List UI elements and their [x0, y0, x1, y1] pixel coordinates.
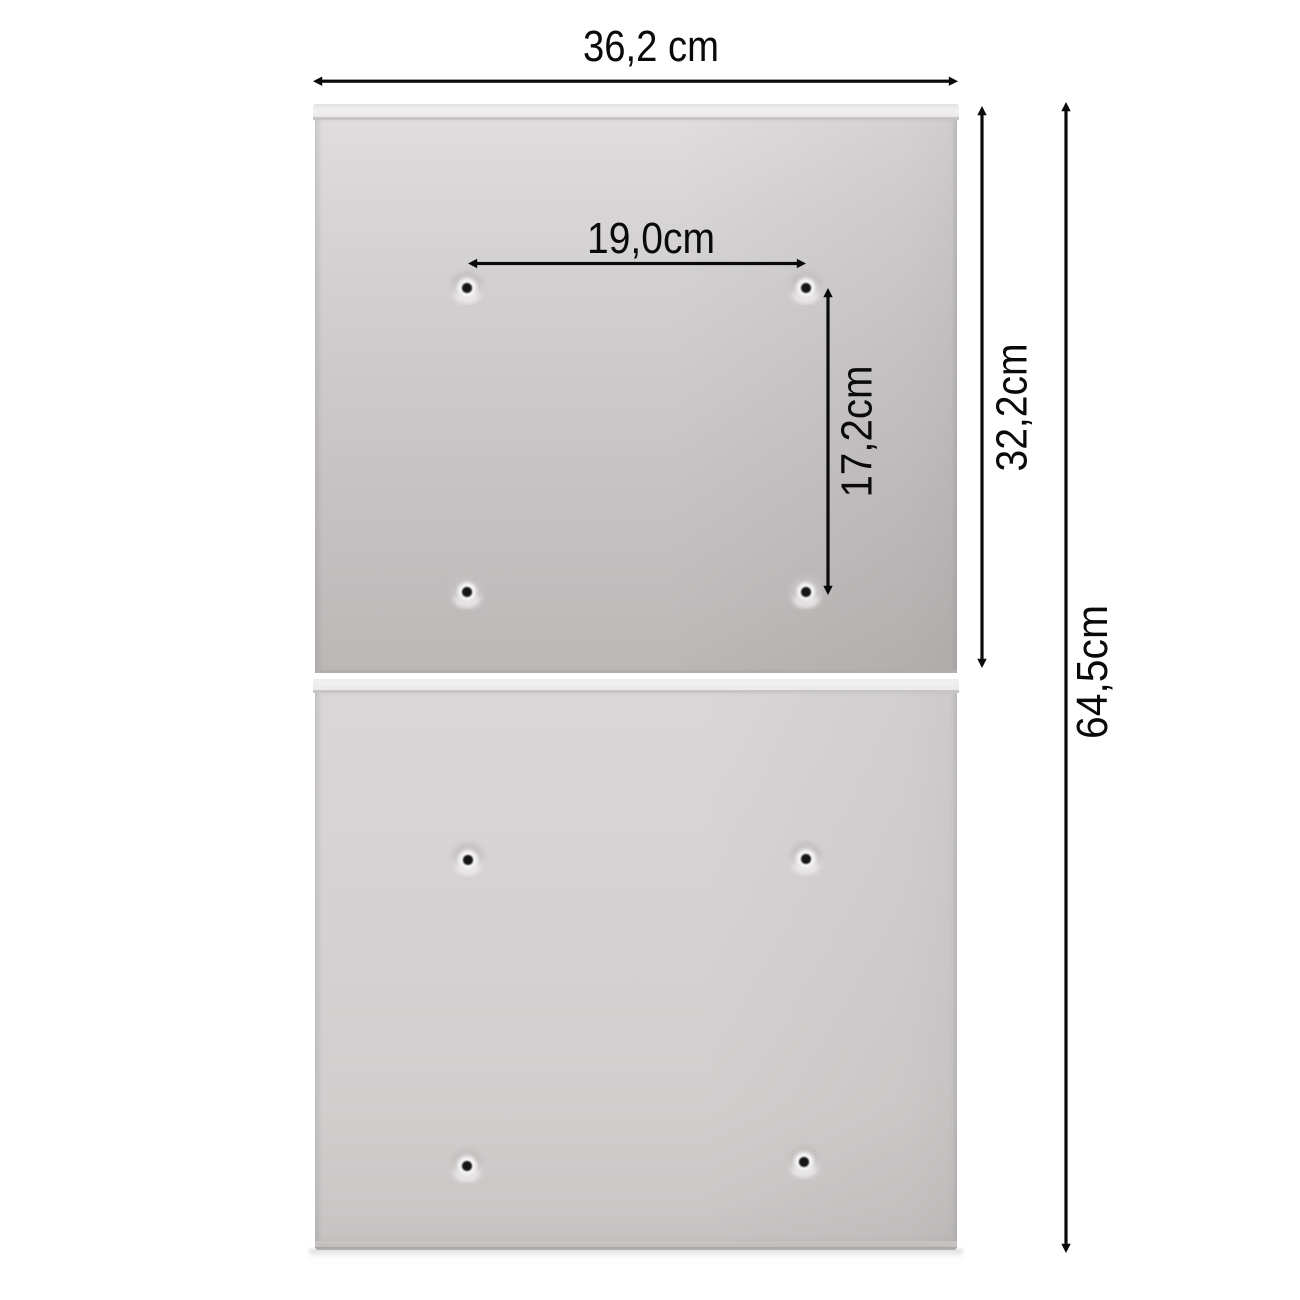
- svg-text:19,0cm: 19,0cm: [587, 215, 715, 263]
- svg-text:36,2 cm: 36,2 cm: [583, 23, 719, 71]
- svg-text:64,5cm: 64,5cm: [1069, 605, 1117, 739]
- svg-text:17,2cm: 17,2cm: [834, 366, 882, 498]
- svg-text:32,2cm: 32,2cm: [989, 344, 1037, 472]
